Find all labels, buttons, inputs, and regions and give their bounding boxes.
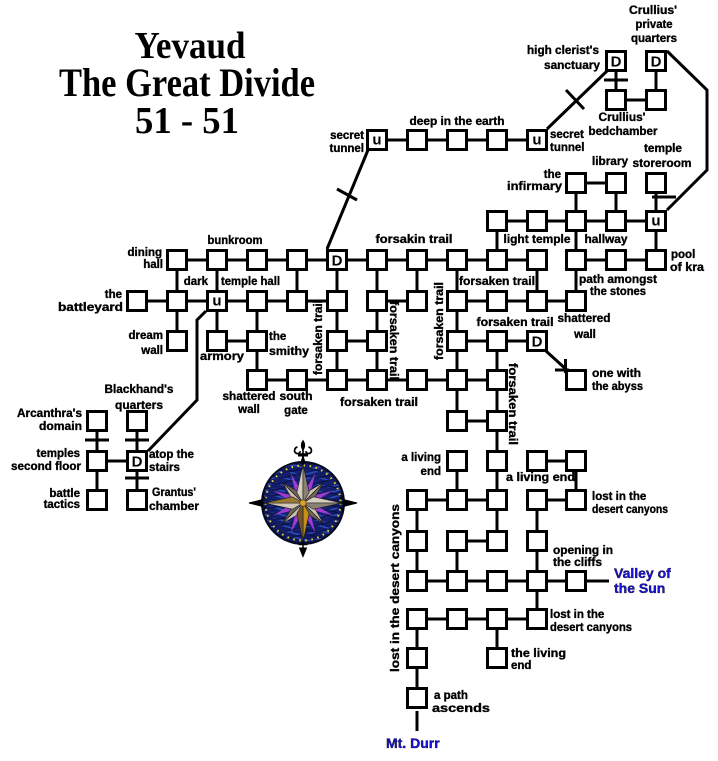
svg-text:the cliffs: the cliffs (553, 557, 602, 569)
svg-text:D: D (611, 54, 622, 71)
svg-text:Crullius': Crullius' (599, 112, 646, 124)
svg-text:forsaken trail: forsaken trail (477, 317, 554, 329)
svg-text:ascends: ascends (432, 703, 490, 715)
svg-text:lost in the: lost in the (592, 491, 646, 503)
svg-text:D: D (651, 54, 662, 71)
svg-text:D: D (332, 253, 343, 270)
svg-text:forsaken trail: forsaken trail (340, 397, 418, 409)
svg-text:u: u (532, 132, 541, 149)
svg-text:the: the (269, 331, 286, 343)
svg-text:dark: dark (184, 276, 209, 288)
svg-text:Blackhand's: Blackhand's (105, 384, 174, 396)
svg-text:domain: domain (39, 421, 82, 433)
svg-text:temple: temple (644, 143, 682, 155)
svg-text:armory: armory (200, 351, 245, 363)
svg-text:D: D (132, 454, 143, 471)
svg-text:u: u (651, 213, 660, 230)
svg-text:stairs: stairs (149, 462, 180, 474)
svg-text:the stones: the stones (590, 286, 646, 298)
svg-text:Grantus': Grantus' (152, 487, 196, 499)
svg-text:the abyss: the abyss (592, 381, 643, 393)
svg-text:quarters: quarters (115, 400, 163, 412)
svg-text:u: u (212, 293, 221, 310)
svg-text:forsaken trail: forsaken trail (434, 282, 446, 360)
svg-text:51 - 51: 51 - 51 (135, 100, 239, 142)
svg-text:shattered: shattered (223, 391, 276, 403)
svg-text:library: library (592, 156, 629, 168)
svg-text:wall: wall (573, 329, 596, 341)
svg-text:one with: one with (592, 368, 641, 380)
svg-text:forsaken trail: forsaken trail (387, 301, 399, 380)
svg-text:D: D (532, 334, 543, 351)
svg-text:chamber: chamber (149, 501, 200, 513)
svg-text:the: the (105, 289, 122, 301)
svg-text:pool: pool (671, 249, 695, 261)
svg-text:forsaken trail: forsaken trail (506, 363, 518, 445)
svg-text:temple hall: temple hall (221, 276, 280, 288)
svg-text:a path: a path (434, 690, 468, 702)
svg-text:of kra: of kra (670, 262, 705, 274)
svg-text:secret: secret (330, 130, 364, 142)
svg-text:dream: dream (128, 330, 163, 342)
svg-text:quarters: quarters (631, 33, 677, 45)
svg-text:storeroom: storeroom (633, 158, 692, 170)
svg-text:hall: hall (143, 259, 163, 271)
svg-text:tactics: tactics (44, 499, 80, 511)
svg-text:the Sun: the Sun (614, 580, 665, 596)
svg-text:Mt. Durr: Mt. Durr (386, 735, 440, 751)
svg-text:The Great Divide: The Great Divide (59, 60, 315, 105)
svg-text:hallway: hallway (585, 234, 629, 246)
svg-text:bunkroom: bunkroom (208, 235, 263, 247)
svg-text:end: end (511, 660, 531, 672)
svg-text:high clerist's: high clerist's (527, 45, 599, 57)
svg-text:end: end (421, 466, 441, 478)
svg-text:gate: gate (284, 405, 308, 417)
svg-text:desert canyons: desert canyons (550, 622, 632, 634)
svg-text:wall: wall (237, 404, 260, 416)
svg-text:deep in the earth: deep in the earth (410, 116, 505, 128)
svg-text:atop the: atop the (149, 449, 194, 461)
svg-text:a living: a living (401, 452, 441, 464)
svg-text:temples: temples (37, 448, 80, 460)
svg-text:bedchamber: bedchamber (589, 126, 659, 138)
svg-text:the living: the living (511, 648, 566, 660)
svg-text:Crullius': Crullius' (629, 5, 677, 17)
svg-text:a living end: a living end (506, 472, 575, 484)
svg-text:lost in the: lost in the (550, 609, 604, 621)
svg-text:private: private (636, 19, 673, 31)
svg-text:lost in the desert canyons: lost in the desert canyons (390, 504, 402, 672)
svg-text:secret: secret (550, 129, 584, 141)
svg-text:forsaken trail: forsaken trail (459, 276, 535, 288)
svg-text:wall: wall (140, 345, 163, 357)
svg-text:dining: dining (128, 247, 163, 259)
svg-text:tunnel: tunnel (550, 142, 585, 154)
svg-text:shattered: shattered (558, 313, 611, 325)
svg-text:tunnel: tunnel (330, 143, 365, 155)
svg-text:sanctuary: sanctuary (544, 60, 601, 72)
svg-text:u: u (372, 132, 381, 149)
svg-text:battleyard: battleyard (58, 302, 123, 314)
svg-text:smithy: smithy (269, 346, 310, 358)
svg-text:Valley of: Valley of (614, 565, 671, 581)
svg-text:desert canyons: desert canyons (592, 504, 668, 516)
svg-text:infirmary: infirmary (507, 181, 563, 193)
svg-text:forsaken trail: forsaken trail (313, 300, 325, 375)
svg-text:Arcanthra's: Arcanthra's (17, 408, 82, 420)
svg-text:the: the (544, 169, 561, 181)
svg-text:light temple: light temple (504, 234, 571, 246)
svg-text:second floor: second floor (11, 461, 82, 473)
svg-text:forsakin trail: forsakin trail (376, 234, 453, 246)
svg-text:opening in: opening in (553, 545, 613, 557)
svg-text:south: south (280, 391, 313, 403)
svg-text:path amongst: path amongst (579, 274, 657, 286)
